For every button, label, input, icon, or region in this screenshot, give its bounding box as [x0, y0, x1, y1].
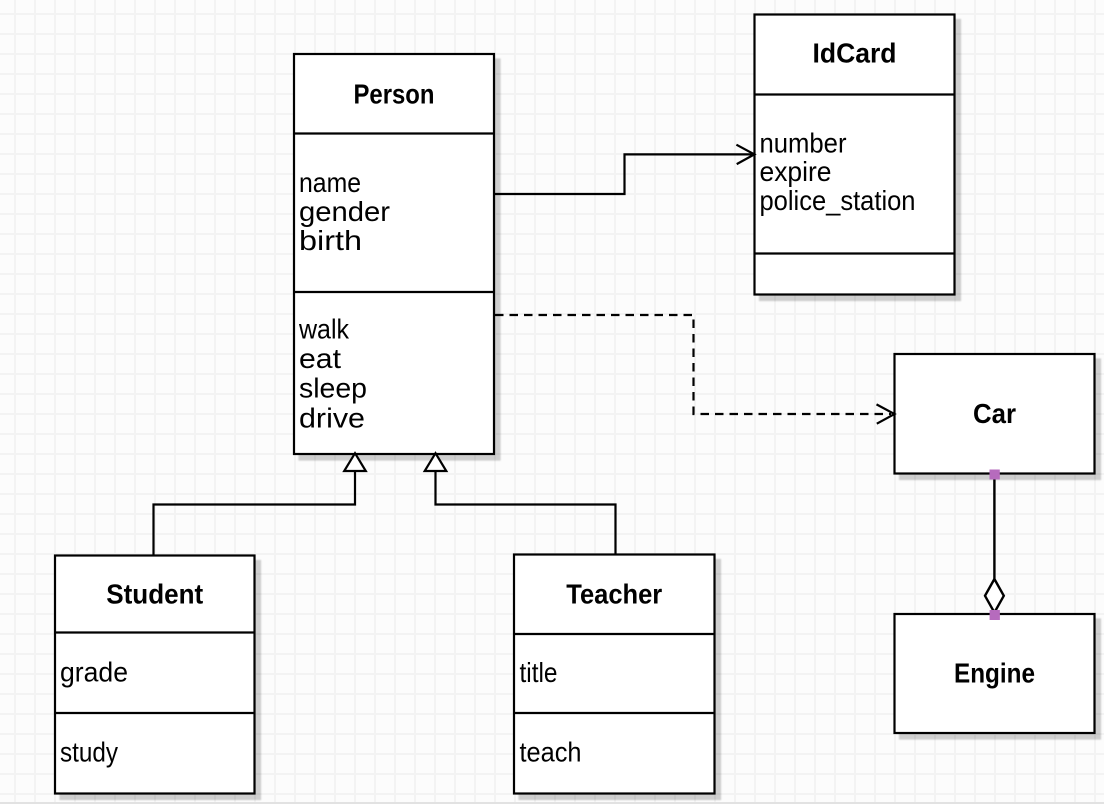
- svg-text:Engine: Engine: [954, 658, 1035, 689]
- svg-text:expire: expire: [760, 156, 832, 187]
- svg-text:name: name: [299, 167, 361, 198]
- svg-text:Teacher: Teacher: [566, 579, 662, 610]
- svg-text:police_station: police_station: [760, 185, 916, 216]
- svg-text:Student: Student: [106, 579, 203, 610]
- svg-text:sleep: sleep: [299, 373, 367, 404]
- svg-text:grade: grade: [60, 657, 128, 688]
- svg-text:birth: birth: [299, 225, 362, 256]
- svg-text:Car: Car: [973, 398, 1016, 429]
- svg-text:eat: eat: [299, 343, 341, 374]
- svg-text:walk: walk: [298, 313, 350, 344]
- svg-text:IdCard: IdCard: [813, 38, 897, 69]
- svg-text:Person: Person: [354, 79, 435, 110]
- svg-text:gender: gender: [299, 196, 390, 227]
- svg-text:drive: drive: [299, 402, 365, 433]
- svg-text:study: study: [60, 737, 118, 768]
- svg-text:teach: teach: [520, 737, 582, 768]
- svg-text:title: title: [520, 657, 558, 688]
- svg-text:number: number: [760, 127, 847, 158]
